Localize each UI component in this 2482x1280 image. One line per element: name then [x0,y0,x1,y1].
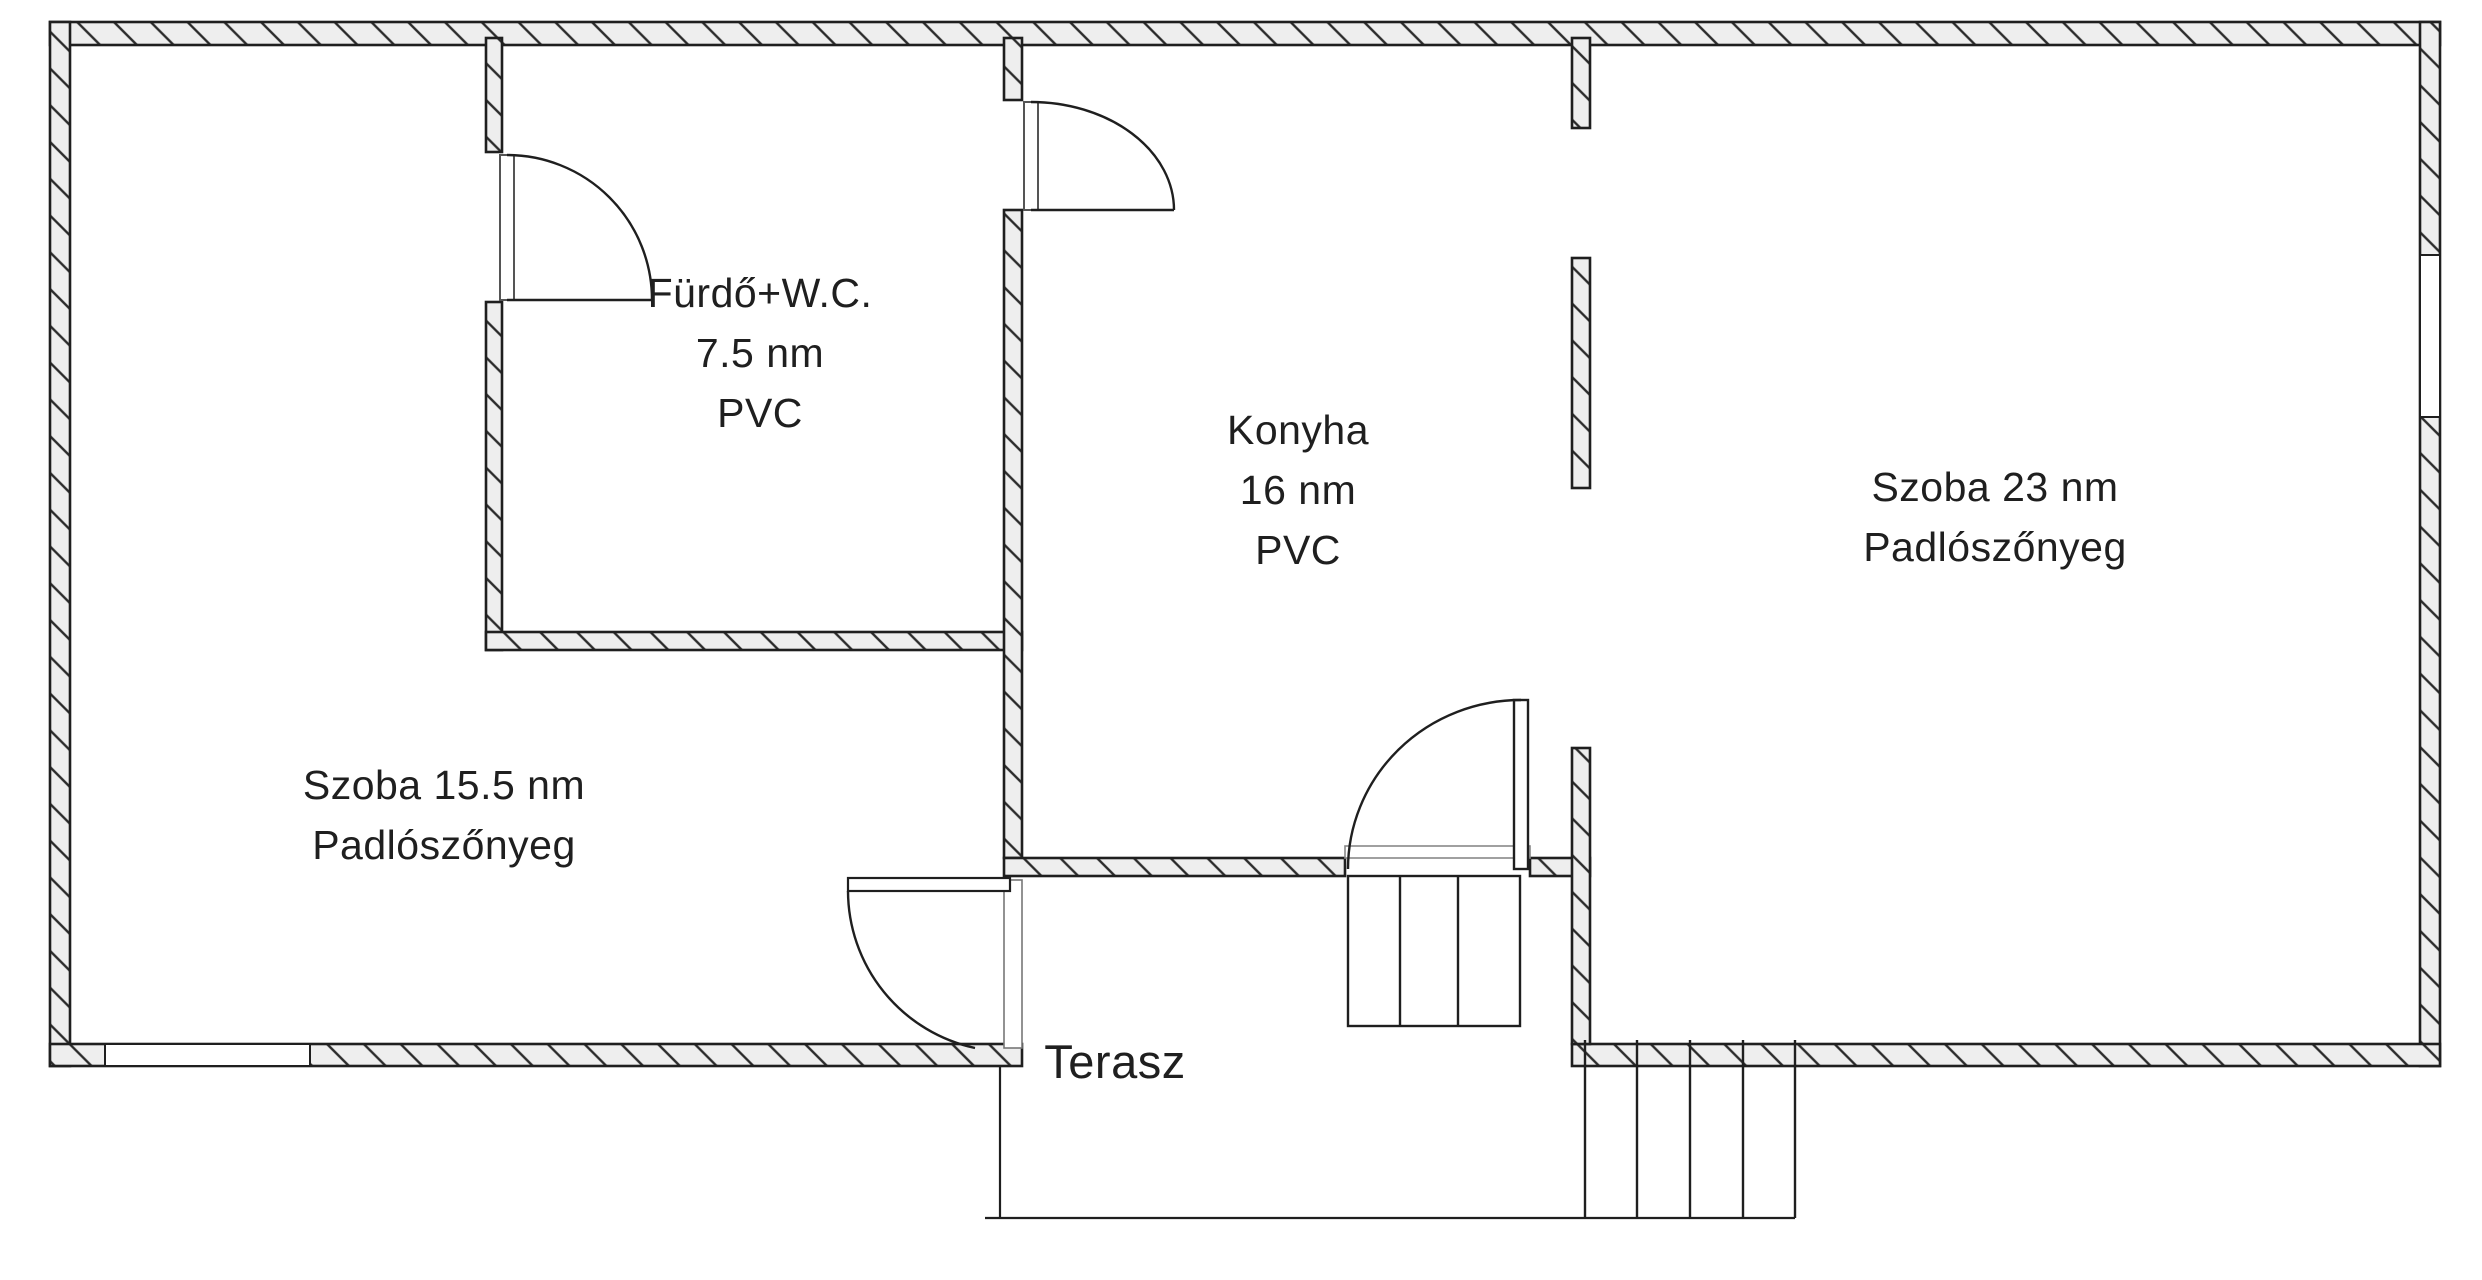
room-flooring: Padlószőnyeg [1863,517,2127,577]
wall-outer-left [50,22,70,1066]
room-label-terasz: Terasz [1044,1034,1185,1090]
floor-plan-svg [0,0,2482,1280]
door-entry-frame [1004,880,1022,1048]
stairs-terrace-upper [1348,876,1520,1026]
wall-outer-bottom-right [1572,1044,2440,1066]
room-label-szoba-23: Szoba 23 nm Padlószőnyeg [1863,457,2127,577]
stairs-upper-outline [1348,876,1520,1026]
wall-bathroom-west-upper [486,38,502,152]
window-bottom-left [105,1044,310,1066]
door-terrace [1345,700,1530,869]
room-name: Szoba 15.5 nm [303,755,585,815]
door-entry [848,878,1022,1048]
door-bathroom-arc [507,155,652,300]
door-bathroom [500,155,652,300]
room-area: 16 nm [1227,460,1369,520]
wall-bathroom-south [486,632,1022,650]
door-kitchen-leaf [1024,102,1038,210]
room-name: Szoba 23 nm [1863,457,2127,517]
wall-divider-segment-middle [1572,258,1590,488]
room-name: Konyha [1227,400,1369,460]
room-label-konyha: Konyha 16 nm PVC [1227,400,1369,580]
wall-kitchen-west-upper [1004,38,1022,100]
window-right [2420,255,2440,417]
wall-kitchen-west-lower [1004,210,1022,858]
wall-outer-top [50,22,2440,45]
wall-divider-segment-bottom [1572,748,1590,1044]
windows [105,255,2440,1066]
door-terrace-leaf [1514,700,1528,869]
room-name: Fürdő+W.C. [648,263,873,323]
wall-bathroom-west-lower [486,302,502,650]
wall-divider-segment-top [1572,38,1590,128]
wall-outer-right [2420,22,2440,1066]
room-flooring: Padlószőnyeg [303,815,585,875]
room-flooring: PVC [1227,520,1369,580]
door-terrace-arc [1348,700,1521,869]
room-area: 7.5 nm [648,323,873,383]
floor-plan: Szoba 15.5 nm Padlószőnyeg Fürdő+W.C. 7.… [0,0,2482,1280]
room-label-szoba-15-5: Szoba 15.5 nm Padlószőnyeg [303,755,585,875]
door-kitchen-arc [1031,102,1174,210]
door-kitchen [1024,102,1174,210]
door-bathroom-leaf [500,155,514,300]
room-flooring: PVC [648,383,873,443]
door-entry-arc [848,891,975,1048]
room-label-furdo-wc: Fürdő+W.C. 7.5 nm PVC [648,263,873,443]
door-terrace-frame [1345,846,1530,858]
wall-kitchen-south-west [1004,858,1345,876]
room-name: Terasz [1044,1034,1185,1090]
door-entry-leaf [848,878,1010,891]
